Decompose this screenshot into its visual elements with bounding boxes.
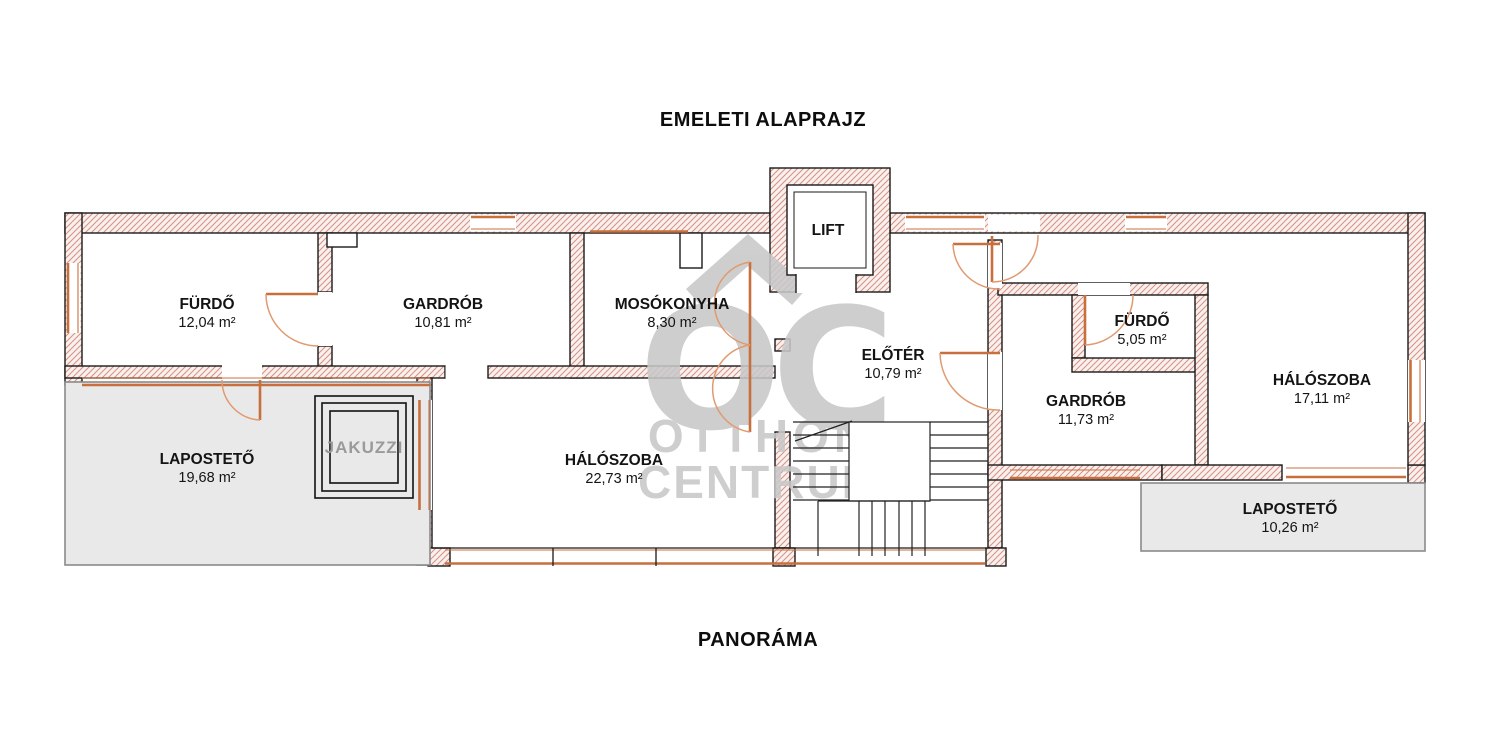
room-label-mosokonyha: MOSÓKONYHA 8,30 m² bbox=[615, 295, 730, 333]
room-name: FÜRDŐ bbox=[1114, 312, 1169, 331]
wall bbox=[1072, 358, 1208, 372]
wall bbox=[1408, 465, 1425, 483]
room-label-haloszoba-22: HÁLÓSZOBA 22,73 m² bbox=[565, 451, 663, 489]
watermark-line1: OTTHON bbox=[648, 410, 872, 462]
page-title: EMELETI ALAPRAJZ bbox=[660, 109, 866, 132]
wall bbox=[1072, 295, 1085, 358]
room-label-jakuzzi: JAKUZZI bbox=[325, 437, 404, 458]
room-area: 19,68 m² bbox=[160, 469, 255, 487]
room-label-gardrob-10: GARDRÓB 10,81 m² bbox=[403, 295, 483, 333]
room-label-furdo-12: FÜRDŐ 12,04 m² bbox=[178, 295, 235, 333]
room-name: GARDRÓB bbox=[1046, 392, 1126, 411]
room-name: JAKUZZI bbox=[325, 437, 404, 458]
wall bbox=[986, 548, 1006, 566]
floorplan-page: OC OTTHON CENTRUM bbox=[0, 0, 1507, 731]
wall bbox=[1408, 213, 1425, 465]
room-label-haloszoba-17: HÁLÓSZOBA 17,11 m² bbox=[1273, 371, 1371, 409]
room-name: LAPOSTETŐ bbox=[160, 450, 255, 469]
room-area: 5,05 m² bbox=[1114, 331, 1169, 349]
room-name: GARDRÓB bbox=[403, 295, 483, 314]
room-name: HÁLÓSZOBA bbox=[565, 451, 663, 470]
wall bbox=[1195, 295, 1208, 465]
room-label-eloter: ELŐTÉR 10,79 m² bbox=[862, 346, 925, 384]
room-area: 22,73 m² bbox=[565, 470, 663, 488]
room-name: ELŐTÉR bbox=[862, 346, 925, 365]
room-area: 10,81 m² bbox=[403, 314, 483, 332]
room-name: FÜRDŐ bbox=[178, 295, 235, 314]
room-name: LIFT bbox=[812, 221, 845, 240]
wall bbox=[65, 213, 770, 233]
room-name: MOSÓKONYHA bbox=[615, 295, 730, 314]
room-name: LAPOSTETŐ bbox=[1243, 500, 1338, 519]
room-label-furdo-5: FÜRDŐ 5,05 m² bbox=[1114, 312, 1169, 350]
room-area: 11,73 m² bbox=[1046, 411, 1126, 429]
room-name: HÁLÓSZOBA bbox=[1273, 371, 1371, 390]
footer-title: PANORÁMA bbox=[698, 629, 818, 652]
wall bbox=[570, 233, 584, 378]
room-area: 8,30 m² bbox=[615, 314, 730, 332]
room-area: 17,11 m² bbox=[1273, 390, 1371, 408]
room-area: 12,04 m² bbox=[178, 314, 235, 332]
room-label-lift: LIFT bbox=[812, 221, 845, 240]
room-label-lapostetu-10: LAPOSTETŐ 10,26 m² bbox=[1243, 500, 1338, 538]
wall-notches bbox=[327, 233, 702, 268]
room-label-gardrob-11: GARDRÓB 11,73 m² bbox=[1046, 392, 1126, 430]
wall bbox=[1162, 465, 1282, 480]
room-area: 10,79 m² bbox=[862, 365, 925, 383]
room-area: 10,26 m² bbox=[1243, 519, 1338, 537]
room-label-lapostetu-19: LAPOSTETŐ 19,68 m² bbox=[160, 450, 255, 488]
